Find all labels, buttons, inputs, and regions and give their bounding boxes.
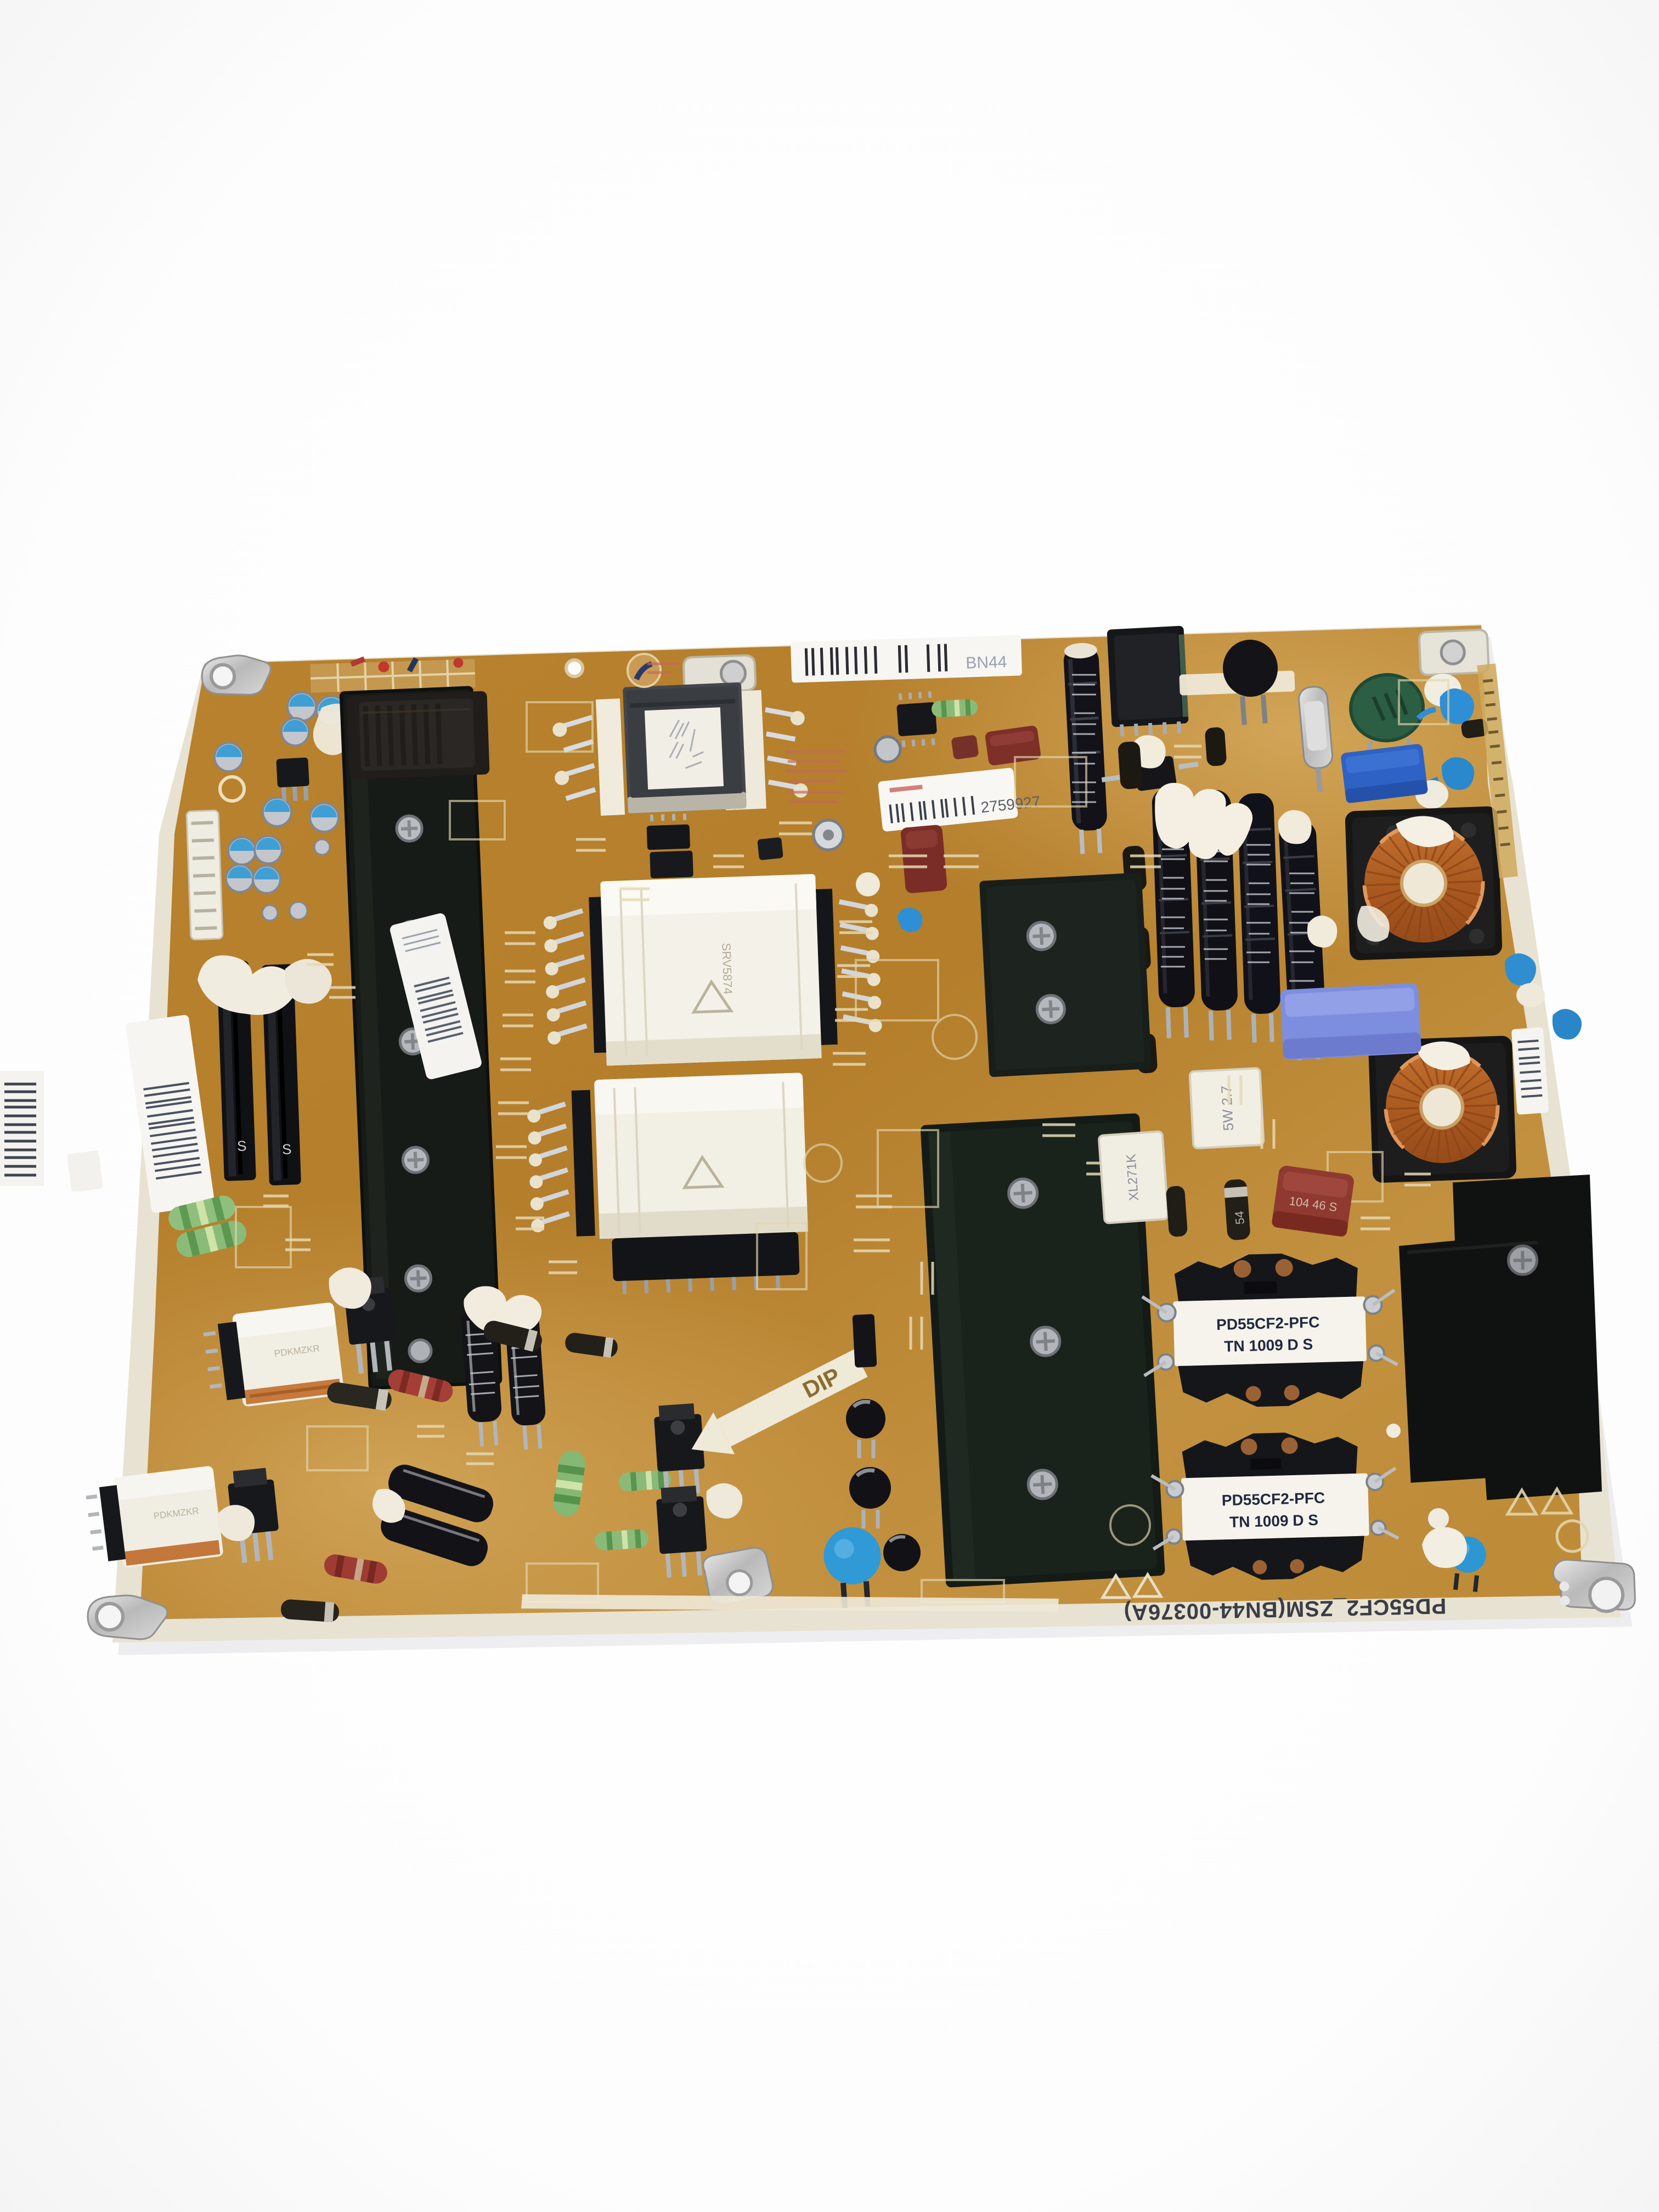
svg-text:TN 1009 D S: TN 1009 D S [1229,1511,1319,1531]
svg-text:5W 2.7: 5W 2.7 [1218,1085,1237,1131]
svg-text:SRV5874: SRV5874 [719,943,735,995]
svg-text:PD55CF2-PFC: PD55CF2-PFC [1216,1313,1320,1333]
svg-text:S: S [282,1141,292,1158]
svg-text:TN 1009 D S: TN 1009 D S [1224,1336,1313,1355]
svg-text:PD55CF2-PFC: PD55CF2-PFC [1222,1489,1325,1509]
svg-text:54: 54 [1232,1211,1247,1225]
svg-text:BN44: BN44 [966,653,1007,672]
svg-text:S: S [236,1137,246,1154]
